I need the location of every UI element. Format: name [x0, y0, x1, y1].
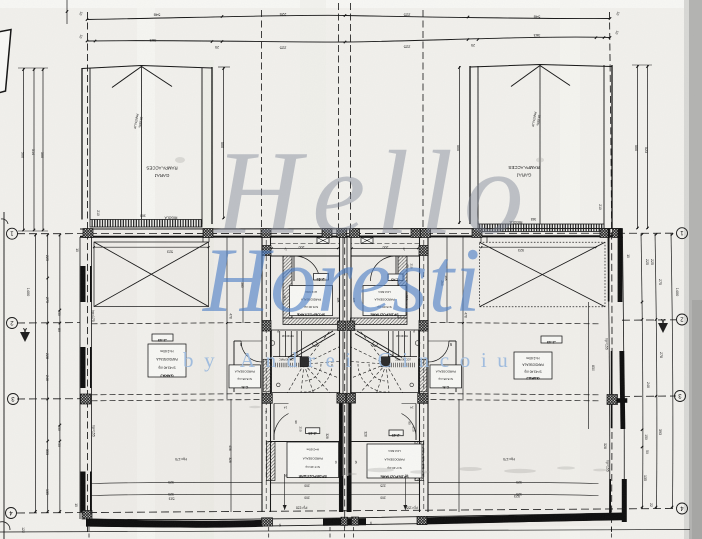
svg-text:Horesti: Horesti: [202, 229, 481, 331]
svg-text:by Andrei Cincoiu: by Andrei Cincoiu: [183, 348, 518, 372]
